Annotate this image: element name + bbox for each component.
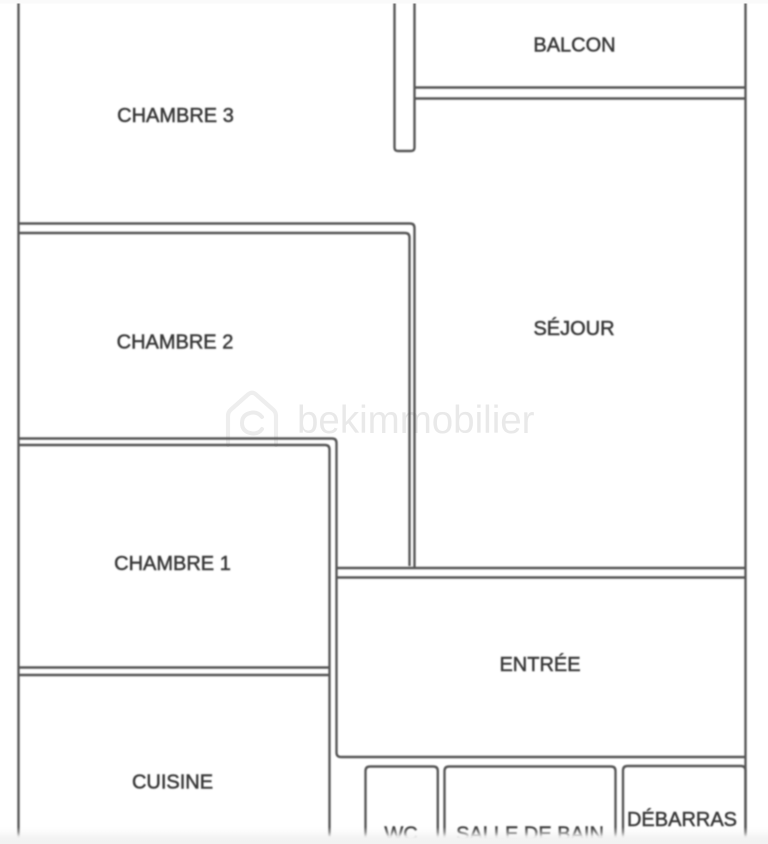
svg-text:SÉJOUR: SÉJOUR bbox=[533, 317, 614, 340]
svg-text:ENTRÉE: ENTRÉE bbox=[499, 653, 580, 676]
svg-text:CUISINE: CUISINE bbox=[132, 772, 213, 794]
svg-text:BALCON: BALCON bbox=[533, 35, 615, 57]
svg-text:CHAMBRE 2: CHAMBRE 2 bbox=[117, 332, 234, 354]
svg-text:bekimmobilier: bekimmobilier bbox=[297, 399, 535, 442]
svg-text:CHAMBRE 3: CHAMBRE 3 bbox=[117, 105, 234, 127]
svg-text:CHAMBRE 1: CHAMBRE 1 bbox=[114, 553, 231, 575]
